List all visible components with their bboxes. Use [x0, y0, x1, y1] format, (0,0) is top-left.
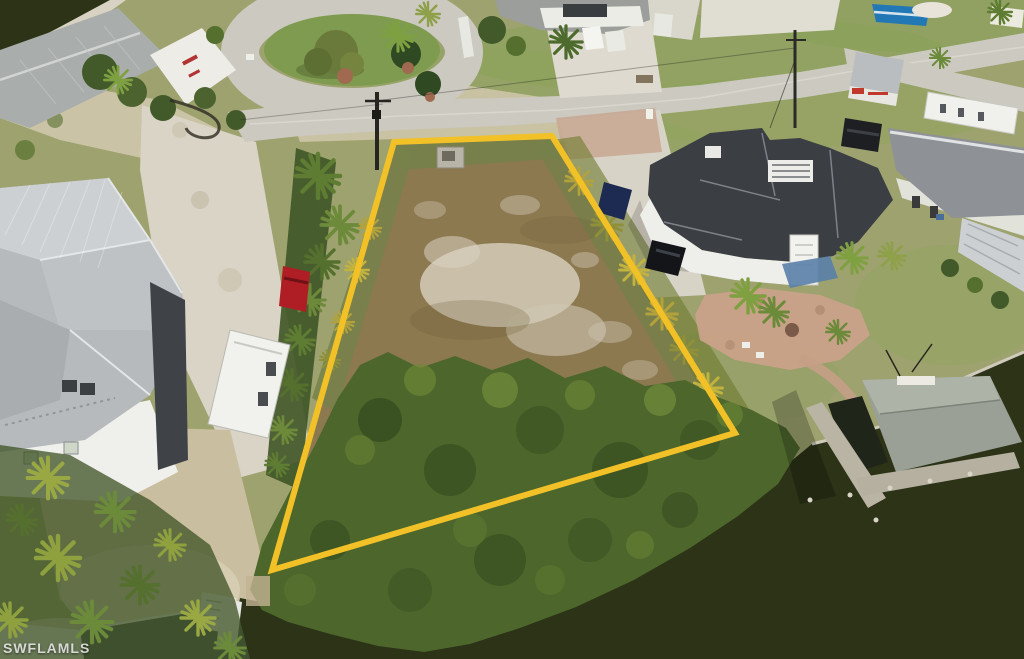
- mls-watermark: SWFLAMLS: [3, 640, 90, 656]
- car-on-road: [246, 54, 254, 60]
- open-garage: [563, 4, 607, 17]
- ac-unit: [62, 380, 77, 392]
- ac-unit: [80, 383, 95, 395]
- white-fence: [653, 13, 673, 37]
- aerial-photo: SWFLAMLS: [0, 0, 1024, 659]
- shell-pile: [912, 2, 952, 18]
- patio-chair: [756, 352, 764, 358]
- mailbox: [646, 109, 653, 119]
- white-roof-object: [897, 376, 935, 385]
- dormer-window: [705, 146, 721, 158]
- small-dock: [246, 576, 270, 606]
- red-suv: [279, 266, 310, 312]
- white-boat-trailer: [605, 30, 626, 52]
- shed-red-stripe: [852, 88, 864, 94]
- fire-pit: [785, 323, 799, 337]
- patio-chair: [742, 342, 750, 348]
